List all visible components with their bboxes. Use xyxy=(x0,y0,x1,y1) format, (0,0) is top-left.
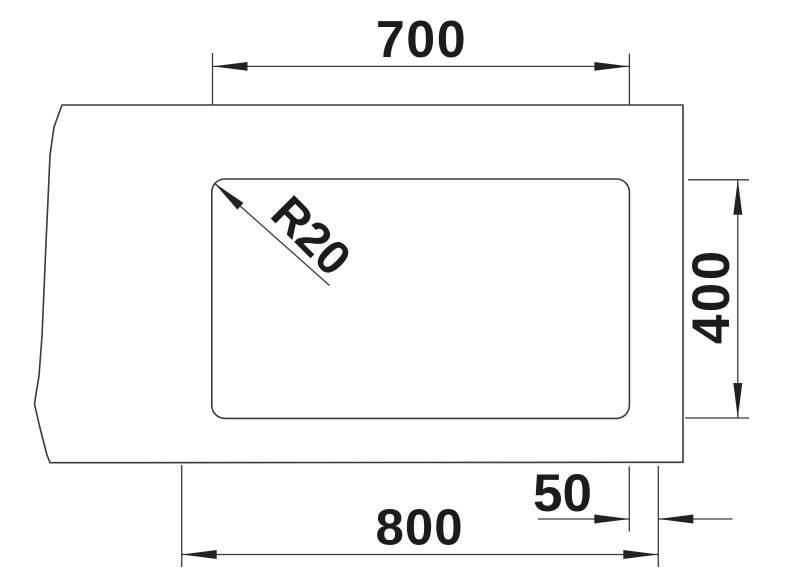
svg-text:400: 400 xyxy=(682,248,741,344)
svg-text:50: 50 xyxy=(533,464,592,523)
svg-text:700: 700 xyxy=(376,11,467,69)
svg-text:800: 800 xyxy=(376,499,464,556)
